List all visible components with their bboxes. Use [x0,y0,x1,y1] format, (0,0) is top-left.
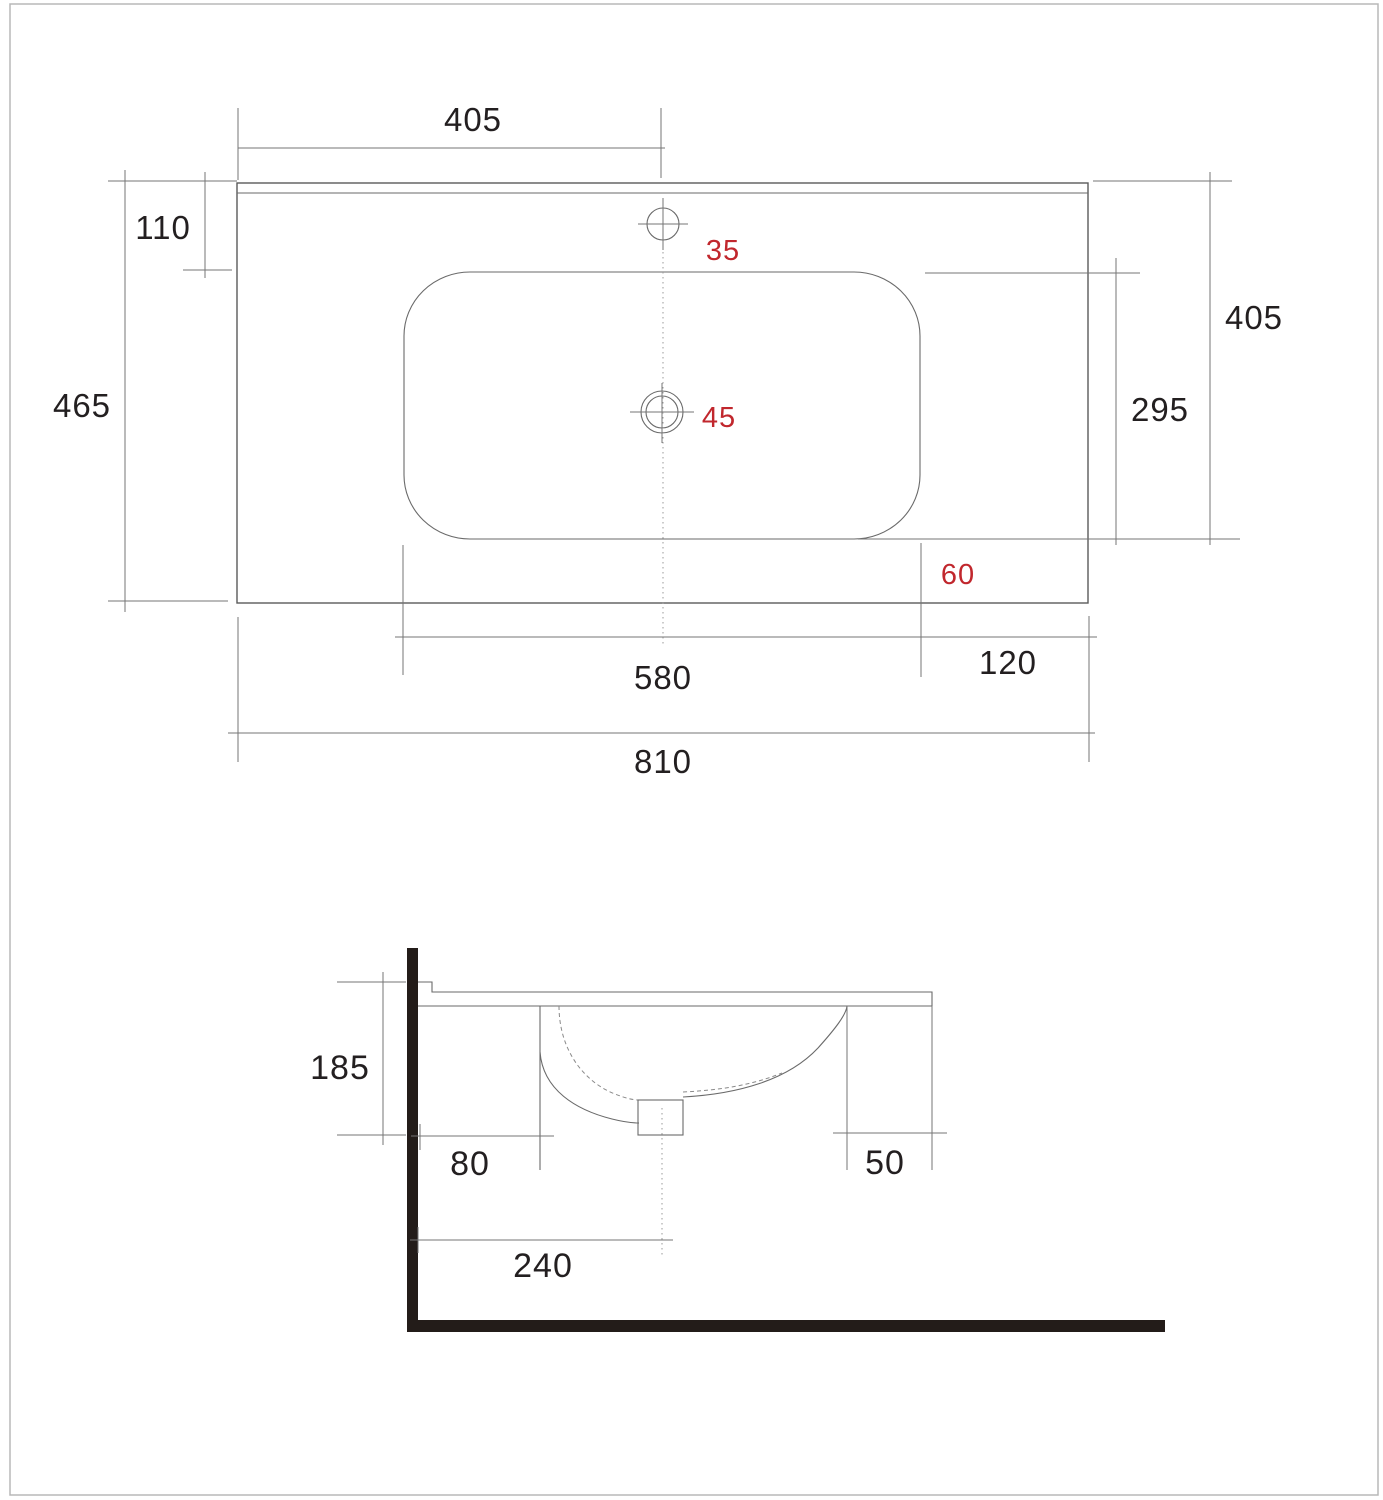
side-view: 185 80 50 240 [310,948,1165,1332]
dim-label-60-red: 60 [941,559,975,591]
dim-label-405-top: 405 [444,101,502,138]
drawing-border [10,4,1378,1495]
faucet-hole [638,198,688,250]
dimension-rim-to-basin: 110 [108,172,237,278]
floor-bar [407,1320,1165,1332]
wall-bar [407,948,418,1332]
dimension-faucet-offset: 405 [238,101,665,180]
dimension-overall-width: 810 [228,617,1095,780]
bowl-outer-left-curve [540,1052,639,1123]
dim-label-80: 80 [450,1145,490,1183]
dim-label-50: 50 [865,1144,905,1182]
basin-bowl-section [540,1006,847,1258]
washbasin-drawing: 405 110 465 405 295 [0,0,1383,1500]
dimension-basin-to-counter-edge: 50 [833,1006,947,1182]
dimension-basin-depth: 295 [858,258,1240,545]
dim-label-405-right: 405 [1225,299,1283,336]
dim-label-580: 580 [634,659,692,696]
bowl-inner-right-curve [683,1073,782,1092]
dim-label-240: 240 [513,1247,573,1285]
drain-hole [630,383,694,443]
dim-label-45-red: 45 [702,402,736,434]
dimension-top-to-basin-bottom: 405 [1093,172,1283,545]
counter-section [418,982,932,1006]
top-view: 405 110 465 405 295 [53,101,1283,780]
dimension-basin-width-row: 580 120 [395,545,1097,762]
dimension-wall-to-basin: 80 [411,1124,554,1183]
dimension-basin-to-front: 60 [921,543,975,677]
dimension-wall-to-drain: 240 [410,1227,673,1285]
counter-top-profile [418,982,932,1006]
dimension-overall-height: 185 [310,972,406,1145]
technical-drawing-page: 405 110 465 405 295 [0,0,1383,1500]
dim-label-295: 295 [1131,391,1189,428]
bowl-inner-left-curve [559,1006,639,1100]
drain-outlet-box [638,1100,683,1135]
dim-label-185: 185 [310,1049,370,1087]
dim-label-465: 465 [53,387,111,424]
bowl-right-curve [683,1006,847,1097]
dim-label-110: 110 [135,209,191,246]
dim-label-810: 810 [634,743,692,780]
dim-label-120: 120 [979,644,1037,681]
dim-label-35-red: 35 [706,235,740,267]
